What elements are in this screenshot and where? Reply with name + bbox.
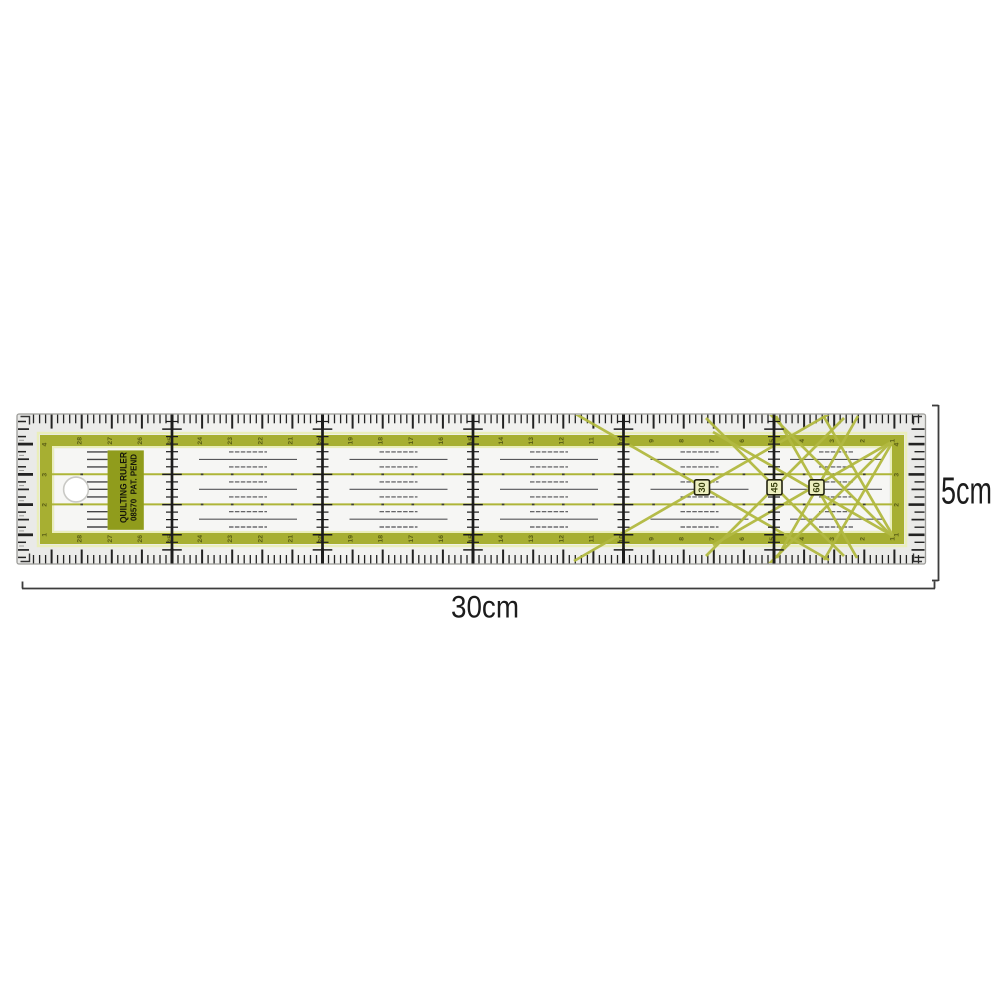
svg-text:6: 6 bbox=[739, 439, 746, 443]
svg-text:27: 27 bbox=[107, 535, 114, 543]
svg-text:30: 30 bbox=[697, 482, 707, 492]
svg-text:4: 4 bbox=[893, 442, 900, 446]
svg-text:9: 9 bbox=[649, 439, 656, 443]
svg-text:14: 14 bbox=[498, 437, 505, 445]
svg-text:4: 4 bbox=[799, 439, 806, 443]
svg-text:12: 12 bbox=[558, 437, 565, 445]
svg-text:17: 17 bbox=[408, 535, 415, 543]
svg-text:18: 18 bbox=[378, 535, 385, 543]
svg-text:08570 PAT. PEND: 08570 PAT. PEND bbox=[129, 454, 139, 521]
svg-text:12: 12 bbox=[558, 535, 565, 543]
svg-text:18: 18 bbox=[378, 437, 385, 445]
svg-text:30cm: 30cm bbox=[451, 589, 519, 625]
svg-text:3: 3 bbox=[893, 473, 900, 477]
svg-text:24: 24 bbox=[197, 535, 204, 543]
svg-text:2: 2 bbox=[41, 503, 48, 507]
svg-text:17: 17 bbox=[408, 437, 415, 445]
svg-text:7: 7 bbox=[709, 537, 716, 541]
svg-text:16: 16 bbox=[438, 437, 445, 445]
svg-text:23: 23 bbox=[227, 437, 234, 445]
svg-text:22: 22 bbox=[257, 535, 264, 543]
svg-text:3: 3 bbox=[41, 473, 48, 477]
svg-text:60: 60 bbox=[812, 482, 822, 492]
svg-text:5cm: 5cm bbox=[941, 471, 992, 513]
svg-text:26: 26 bbox=[137, 437, 144, 445]
svg-text:3: 3 bbox=[829, 537, 836, 541]
svg-text:11: 11 bbox=[588, 535, 595, 542]
svg-text:28: 28 bbox=[77, 535, 84, 543]
svg-text:3: 3 bbox=[829, 439, 836, 443]
svg-text:1: 1 bbox=[893, 533, 900, 537]
svg-text:45: 45 bbox=[770, 482, 780, 492]
svg-text:27: 27 bbox=[107, 437, 114, 445]
svg-text:2: 2 bbox=[893, 503, 900, 507]
svg-text:14: 14 bbox=[498, 535, 505, 543]
svg-text:26: 26 bbox=[137, 535, 144, 543]
svg-text:13: 13 bbox=[528, 535, 535, 543]
svg-text:2: 2 bbox=[859, 439, 866, 443]
svg-text:8: 8 bbox=[679, 439, 686, 443]
svg-text:23: 23 bbox=[227, 535, 234, 543]
svg-text:6: 6 bbox=[739, 537, 746, 541]
svg-text:8: 8 bbox=[679, 537, 686, 541]
svg-text:19: 19 bbox=[348, 437, 355, 445]
svg-text:21: 21 bbox=[287, 535, 294, 543]
svg-text:7: 7 bbox=[709, 439, 716, 443]
svg-text:28: 28 bbox=[77, 437, 84, 445]
svg-text:11: 11 bbox=[588, 437, 595, 444]
svg-text:21: 21 bbox=[287, 437, 294, 445]
svg-text:22: 22 bbox=[257, 437, 264, 445]
svg-text:1: 1 bbox=[889, 439, 896, 443]
svg-text:1: 1 bbox=[41, 533, 48, 537]
svg-text:4: 4 bbox=[41, 442, 48, 446]
svg-text:19: 19 bbox=[348, 535, 355, 543]
svg-text:2: 2 bbox=[859, 537, 866, 541]
svg-text:13: 13 bbox=[528, 437, 535, 445]
svg-text:24: 24 bbox=[197, 437, 204, 445]
svg-text:9: 9 bbox=[649, 537, 656, 541]
svg-text:16: 16 bbox=[438, 535, 445, 543]
svg-text:4: 4 bbox=[799, 537, 806, 541]
